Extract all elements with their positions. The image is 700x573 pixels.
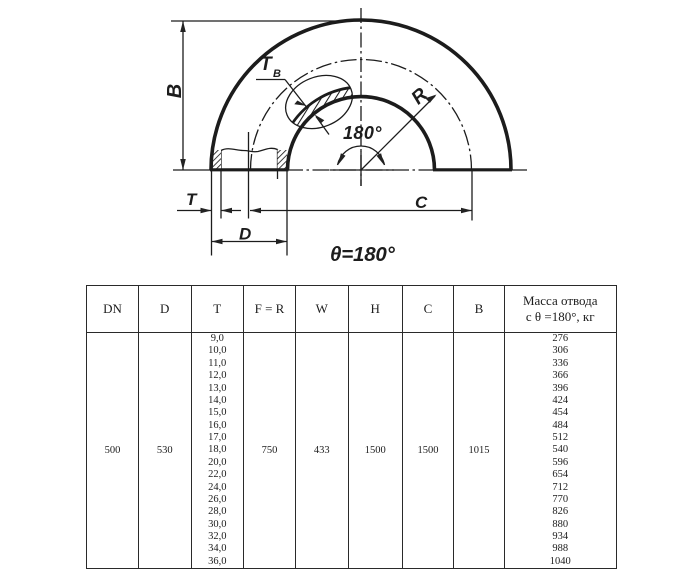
svg-text:T: T bbox=[186, 190, 198, 209]
svg-text:B: B bbox=[273, 68, 281, 80]
svg-text:C: C bbox=[415, 193, 428, 212]
svg-text:θ=180°: θ=180° bbox=[330, 243, 396, 266]
svg-text:R: R bbox=[408, 84, 432, 109]
svg-text:B: B bbox=[164, 84, 186, 98]
svg-text:180°: 180° bbox=[343, 123, 382, 143]
svg-text:T: T bbox=[260, 54, 273, 75]
svg-text:D: D bbox=[239, 225, 251, 244]
